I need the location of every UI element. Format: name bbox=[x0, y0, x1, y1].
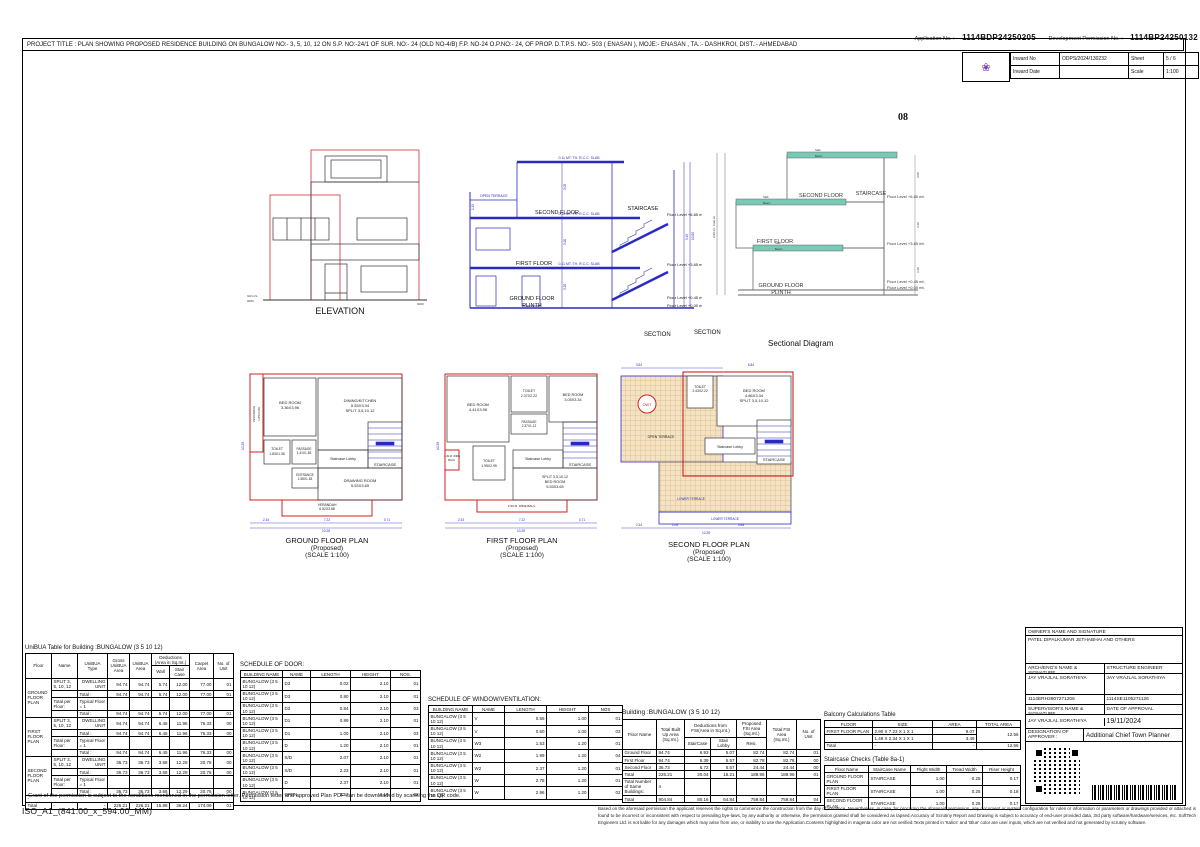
room-size: 3.36X3.96 bbox=[281, 405, 300, 410]
grant-note: Grant of the permission is subject to th… bbox=[28, 793, 508, 799]
table-cell: LENGTH bbox=[311, 671, 351, 678]
plan-scale: (SCALE 1:100) bbox=[611, 556, 807, 563]
table-cell: 00 bbox=[214, 756, 234, 768]
staircase-label: STAIRCASE bbox=[628, 206, 659, 212]
table-cell: 01 bbox=[589, 713, 623, 725]
code-area bbox=[1026, 742, 1182, 804]
plan-title: GROUND FLOOR PLAN bbox=[236, 536, 418, 545]
table-cell: 82.78 bbox=[767, 757, 797, 764]
second-floor-plan-drawing: OWT TOILET 1.43X2.22 BED ROOM 4.86X3.34 … bbox=[611, 360, 807, 536]
table-cell: 759.84 bbox=[767, 796, 797, 803]
sheet-label: Sheet bbox=[1129, 53, 1164, 66]
ground-floor-label: GROUND FLOOR bbox=[510, 296, 555, 302]
table-row: BUNGALOW (3 5 10 12)W2.781.2001 bbox=[429, 774, 623, 786]
second-floor-label: SECOND FLOOR bbox=[535, 210, 579, 216]
table-cell: 5.57 bbox=[711, 757, 737, 764]
terrace-label: OPEN TERRACE bbox=[648, 435, 675, 439]
table-cell: 94.74 bbox=[130, 691, 152, 698]
table-row: BUNGALOW (3 5 10 12)V0.561.0001 bbox=[429, 713, 623, 725]
table-row: Total per Floor: Typical Floor = 1 bbox=[26, 737, 234, 749]
slab-note: 0.11 MT. TH. R.C.C. SLAB bbox=[558, 156, 600, 160]
table-cell: 1.53 bbox=[505, 737, 547, 749]
table-cell: D bbox=[283, 776, 311, 788]
table-cell: 11.96 bbox=[170, 717, 190, 729]
table-cell: NAME bbox=[283, 671, 311, 678]
table-cell: W3 bbox=[473, 737, 505, 749]
table-cell: HEIGHT bbox=[351, 671, 391, 678]
supervisor-name: JAY VRAJLAL SORATHIYA bbox=[1026, 718, 1105, 726]
table-cell: SIZE bbox=[873, 721, 933, 728]
structure-engineer-name: JAY VRAJLAL SORATHIYA bbox=[1105, 674, 1183, 694]
table-cell: 1.20 bbox=[547, 737, 589, 749]
table-cell: Floor bbox=[26, 654, 52, 679]
table-cell: Name bbox=[52, 654, 78, 679]
table-cell: 12.29 bbox=[170, 756, 190, 768]
table-cell: 01 bbox=[589, 774, 623, 786]
table-cell: 1.20 bbox=[547, 750, 589, 762]
table-cell: Resi. bbox=[737, 737, 767, 749]
table-cell: 2.10 bbox=[351, 776, 391, 788]
section-floor-labels: SECOND FLOOR STAIRCASE FIRST FLOOR GROUN… bbox=[510, 206, 702, 309]
ground-level-label: GR.LVL. bbox=[247, 294, 258, 298]
table-cell: Typical Floor = 1 bbox=[78, 698, 108, 710]
table-cell: 2.10 bbox=[351, 727, 391, 739]
structure-engineer-registration: 1114SE1105271126 bbox=[1105, 695, 1183, 704]
table-cell: 76.33 bbox=[190, 749, 214, 756]
table-cell: 94.74 bbox=[108, 749, 130, 756]
plan-subtitle: (Proposed) bbox=[611, 549, 807, 556]
approval-date-value: 19/11/2024 bbox=[1105, 717, 1183, 727]
sectional-section-caption: SECTION bbox=[694, 330, 721, 336]
ground-level-mark: 0000 bbox=[247, 299, 254, 303]
dim-label: 3.00 bbox=[916, 172, 920, 178]
room-size: 4.41X3.96 bbox=[469, 407, 488, 412]
table-cell: DWELLING UNIT bbox=[78, 756, 108, 768]
table-cell: 36.73 bbox=[130, 769, 152, 776]
table-cell bbox=[52, 749, 78, 756]
table-cell: W2 bbox=[473, 750, 505, 762]
table-cell: 2.37 bbox=[311, 776, 351, 788]
table-row: BUNGALOW (3 5 10 12)W22.371.2001 bbox=[429, 762, 623, 774]
table-cell: 94.74 bbox=[108, 717, 130, 729]
room-label: TOILET bbox=[523, 389, 536, 393]
table-cell: 174.09 bbox=[190, 802, 214, 809]
table-row: Ground Floor94.746.935.0782.7482.7401 bbox=[623, 749, 821, 756]
table-cell: 2.10 bbox=[351, 752, 391, 764]
table-row: BUNGALOW (3 5 10 12)S/D2.072.1001 bbox=[241, 752, 421, 764]
table-cell: 00 bbox=[214, 769, 234, 776]
qr-code bbox=[1034, 748, 1080, 794]
table-cell: 94.74 bbox=[130, 749, 152, 756]
table-cell: 5.74 bbox=[152, 691, 170, 698]
table-cell: Total bbox=[825, 742, 873, 749]
table-cell: 759.84 bbox=[737, 796, 767, 803]
table-cell: 82.78 bbox=[737, 757, 767, 764]
room-split: SPLIT 3,5,10,12 bbox=[740, 398, 770, 403]
inward-no-value: ODPS/2024/130232 bbox=[1060, 53, 1129, 66]
plinth-label: PLINTH bbox=[771, 290, 791, 296]
table-cell: 36.73 bbox=[108, 769, 130, 776]
table-cell: 3.49 bbox=[933, 735, 977, 742]
supervisor-label: SUPERVISOR'S NAME & SIGNATURE bbox=[1026, 705, 1105, 714]
sectional-labels: Slab Beam Slab Beam Slab Beam SECOND FLO… bbox=[712, 148, 925, 296]
table-cell: BUNGALOW (3 5 10 12) bbox=[429, 737, 473, 749]
table-cell: 01 bbox=[214, 678, 234, 690]
table-cell: 2.37 bbox=[505, 762, 547, 774]
table-cell: SPLIT 3, 5, 10, 12 bbox=[52, 756, 78, 768]
flower-logo-icon: ❀ bbox=[981, 61, 990, 74]
room-labels: BED ROOM 4.41X3.96 TOILET 2.37X2.22 BED … bbox=[444, 389, 592, 508]
slab-note: 0.11 MT. TH. R.C.C. SLAB bbox=[558, 262, 600, 266]
table-cell: 5.74 bbox=[152, 710, 170, 717]
table-cell: 94.74 bbox=[130, 710, 152, 717]
inward-date-value bbox=[1060, 66, 1129, 79]
dim-label: 10.28 bbox=[702, 531, 710, 535]
dim-label: 1.15 bbox=[471, 204, 475, 210]
table-cell: 1.00 bbox=[547, 713, 589, 725]
table-cell bbox=[52, 691, 78, 698]
staircase-label: STAIRCASE bbox=[856, 191, 887, 197]
table-cell: BUNGALOW (3 5 10 12) bbox=[241, 752, 283, 764]
table-cell: 16.21 bbox=[711, 771, 737, 778]
dim-label: 9.45 bbox=[685, 234, 689, 240]
table-cell: W2 bbox=[473, 762, 505, 774]
table-cell: 6.45 bbox=[152, 717, 170, 729]
table-cell: LENGTH bbox=[505, 706, 547, 713]
balcony-table: FLOORSIZEAREATOTAL AREAFIRST FLOOR PLAN2… bbox=[824, 720, 1021, 750]
table-cell: V bbox=[473, 725, 505, 737]
room-size: 1.95X2.95 bbox=[481, 464, 497, 468]
building-fsi-table: Floor NameTotal Built Up Area (Sq.mt.)De… bbox=[622, 719, 821, 803]
table-cell: GROUND FLOOR PLAN bbox=[825, 773, 869, 785]
dim-label: 2.34 bbox=[636, 523, 642, 527]
table-cell bbox=[190, 698, 214, 710]
table-cell: 11.96 bbox=[170, 730, 190, 737]
level-label: Floor Level +0.00 mt. bbox=[887, 285, 925, 290]
level-label: Floor Level +6.85 mt. bbox=[667, 212, 702, 217]
table-cell bbox=[190, 737, 214, 749]
level-label: Floor Level +0.45 mt. bbox=[667, 295, 702, 300]
room-size: 1.58X1.83 bbox=[298, 477, 313, 481]
first-floor-plan-drawing: BED ROOM 4.41X3.96 TOILET 2.37X2.22 BED … bbox=[431, 366, 613, 534]
table-cell: 94.74 bbox=[108, 730, 130, 737]
table-row: Inward Date Scale 1:100 bbox=[1011, 66, 1199, 79]
table-row: First Floor94.746.395.5782.7882.7800 bbox=[623, 757, 821, 764]
first-floor-label: FIRST FLOOR bbox=[757, 239, 793, 245]
owner-name: PATEL DIPALKUMAR JETHABHAI AND OTHERS bbox=[1026, 636, 1182, 664]
dim-label: 3.20 bbox=[563, 284, 567, 290]
table-row: FloorNameUniBUA TypeGross UniBUA AreaUni… bbox=[26, 654, 234, 666]
table-cell: 64.84 bbox=[711, 796, 737, 803]
table-cell: BUNGALOW (3 5 10 12) bbox=[429, 713, 473, 725]
table-row: Floor NameTotal Built Up Area (Sq.mt.)De… bbox=[623, 720, 821, 738]
table-cell: Stair Lobby bbox=[711, 737, 737, 749]
room-label: STAIRCASE bbox=[763, 457, 786, 462]
ground-floor-plan-drawing: BED ROOM 3.36X3.96 DINING/KITCHEN 5.53X3… bbox=[236, 366, 418, 534]
table-cell: Total : bbox=[78, 769, 108, 776]
table-cell bbox=[214, 776, 234, 788]
door-schedule-table: BUILDING NAMENAMELENGTHHEIGHTNOS.BUNGALO… bbox=[240, 670, 421, 802]
table-cell: 0.80 bbox=[311, 690, 351, 702]
table-cell: 01 bbox=[391, 776, 421, 788]
dim-label: 2.34 bbox=[263, 518, 269, 522]
table-row: Total :94.7494.745.7412.0077.0001 bbox=[26, 710, 234, 717]
level-label: Floor Level +3.65 mt. bbox=[667, 262, 702, 267]
table-cell: NOS bbox=[589, 706, 623, 713]
first-floor-label: FIRST FLOOR bbox=[516, 261, 552, 267]
table-cell: 94.74 bbox=[657, 757, 685, 764]
table-cell: 04 bbox=[589, 750, 623, 762]
dim-label: 7.22 bbox=[519, 518, 525, 522]
table-cell: BUNGALOW (3 5 10 12) bbox=[429, 774, 473, 786]
table-cell bbox=[52, 710, 78, 717]
table-cell: 2.78 bbox=[505, 774, 547, 786]
table-cell: 5.74 bbox=[152, 678, 170, 690]
table-cell bbox=[825, 735, 873, 742]
room-size: 1.41X1.83 bbox=[297, 451, 312, 455]
table-cell: BUILDING NAME bbox=[429, 706, 473, 713]
first-plan-caption: FIRST FLOOR PLAN (Proposed) (SCALE 1:100… bbox=[431, 536, 613, 559]
table-cell: 2.90 X 7.23 X 1 X 1 bbox=[873, 728, 933, 735]
table-cell: 2.10 bbox=[351, 764, 391, 776]
table-cell: 1.49 X 2.34 X 1 X 1 bbox=[873, 735, 933, 742]
dim-label: 2.06 bbox=[672, 523, 678, 527]
plan-title: SECOND FLOOR PLAN bbox=[611, 540, 807, 549]
table-row: GROUND FLOOR PLANSPLIT 3, 5, 10, 12DWELL… bbox=[26, 678, 234, 690]
terrace-label: LOWER TERRACE bbox=[711, 517, 739, 521]
ground-level-mark: 0000 bbox=[417, 302, 424, 306]
room-label: STAIRCASE bbox=[569, 462, 592, 467]
room-label: TOILET bbox=[483, 459, 495, 463]
table-cell: Total : bbox=[78, 691, 108, 698]
table-cell: 20.04 bbox=[685, 771, 711, 778]
table-cell: Floor Name bbox=[623, 720, 657, 750]
room-label: BED ROOM bbox=[545, 480, 566, 484]
table-cell: 11.96 bbox=[170, 749, 190, 756]
sectional-diagram-drawing: Slab Beam Slab Beam Slab Beam SECOND FLO… bbox=[703, 138, 948, 326]
table-cell: 24.44 bbox=[737, 764, 767, 771]
table-cell: 1.20 bbox=[547, 762, 589, 774]
table-cell: Gross UniBUA Area bbox=[108, 654, 130, 679]
table-cell: Typical Floor = 1 bbox=[78, 776, 108, 788]
table-cell: 1.00 bbox=[911, 773, 947, 785]
table-cell: Total bbox=[623, 796, 657, 803]
table-row: FIRST FLOOR PLAN2.90 X 7.23 X 1 X 19.071… bbox=[825, 728, 1021, 735]
room-size: 1.05X3.80 bbox=[257, 407, 261, 421]
room-size: 1.83X1.38 bbox=[269, 452, 285, 456]
table-cell bbox=[130, 737, 152, 749]
table-cell: BUNGALOW (3 5 10 12) bbox=[429, 725, 473, 737]
scale-label: Scale bbox=[1129, 66, 1164, 79]
table-row: Total :94.7494.746.4511.9676.3300 bbox=[26, 749, 234, 756]
arch-eng-name: JAY VRAJLAL SORATHIYA bbox=[1026, 674, 1105, 694]
table-cell: No. of Unit bbox=[214, 654, 234, 679]
table-cell: 01 bbox=[391, 690, 421, 702]
table-row: FIRST FLOOR PLANSPLIT 3, 5, 10, 12DWELLI… bbox=[26, 717, 234, 729]
table-row: Total226.2120.0416.21189.96189.9601 bbox=[623, 771, 821, 778]
table-cell: 2.10 bbox=[351, 690, 391, 702]
table-cell: 3.68 bbox=[152, 756, 170, 768]
table-cell: 36.24 bbox=[170, 802, 190, 809]
terrace-label: LOWER TERRACE bbox=[677, 497, 705, 501]
table-cell: 1.00 bbox=[911, 785, 947, 797]
table-cell: 03 bbox=[589, 725, 623, 737]
table-cell: First Floor bbox=[623, 757, 657, 764]
table-cell: 5.07 bbox=[711, 749, 737, 756]
table-cell: 01 bbox=[391, 739, 421, 751]
sheet-page-number: 08 bbox=[898, 112, 908, 123]
project-title: PROJECT TITLE : PLAN SHOWING PROPOSED RE… bbox=[22, 38, 1184, 51]
table-cell: TOTAL AREA bbox=[977, 721, 1021, 728]
table-cell: BUNGALOW (3 5 10 12) bbox=[429, 750, 473, 762]
table-cell: 0.84 bbox=[311, 702, 351, 714]
table-cell: Deductions (Area in Sq.mt.) bbox=[152, 654, 190, 666]
table-cell bbox=[767, 778, 797, 796]
dim-label: 10.28 bbox=[322, 529, 330, 533]
table-cell: BUILDING NAME bbox=[241, 671, 283, 678]
table-cell: 2.96 bbox=[505, 787, 547, 799]
table-cell: 77.00 bbox=[190, 678, 214, 690]
table-cell: 20.76 bbox=[190, 756, 214, 768]
table-cell: AREA bbox=[933, 721, 977, 728]
dim-label: 3.20 bbox=[563, 239, 567, 245]
level-label: Floor Level +0.45 mt. bbox=[887, 279, 925, 284]
table-cell: 0.60 bbox=[505, 725, 547, 737]
slab-bars bbox=[736, 152, 897, 251]
table-cell: D3 bbox=[283, 678, 311, 690]
arch-eng-label: ARCH/ENG'S NAME & SIGNATURE bbox=[1026, 664, 1105, 673]
table-cell: D1 bbox=[283, 715, 311, 727]
table-cell: 6.72 bbox=[685, 764, 711, 771]
table-cell bbox=[130, 698, 152, 710]
ground-floor-label: GROUND FLOOR bbox=[759, 283, 804, 289]
ground-plan-caption: GROUND FLOOR PLAN (Proposed) (SCALE 1:10… bbox=[236, 536, 418, 559]
table-cell: HEIGHT bbox=[547, 706, 589, 713]
table-cell bbox=[170, 776, 190, 788]
table-cell: 2.10 bbox=[351, 678, 391, 690]
room-split: SPLIT 3,5,10,12 bbox=[346, 408, 376, 413]
table-cell: 94.74 bbox=[108, 691, 130, 698]
beam-label: Beam bbox=[775, 247, 783, 251]
elevation-red-outline bbox=[270, 150, 419, 300]
table-cell: 0.56 bbox=[505, 713, 547, 725]
table-cell: BUNGALOW (3 5 10 12) bbox=[429, 762, 473, 774]
approval-date-label: DATE OF APPROVAL bbox=[1105, 705, 1183, 714]
balcony-table-title: Balcony Calculations Table bbox=[824, 712, 896, 718]
dim-label: 5.88 bbox=[738, 523, 744, 527]
room-label: TOILET bbox=[271, 447, 283, 451]
room-label: Staircase Lobby bbox=[717, 445, 743, 449]
table-row: BUNGALOW (3 5 10 12)D1.202.1001 bbox=[241, 739, 421, 751]
table-cell: - bbox=[873, 742, 933, 749]
table-cell: BUNGALOW (3 5 10 12) bbox=[241, 678, 283, 690]
table-cell: S/D bbox=[283, 764, 311, 776]
table-cell: 2.10 bbox=[351, 715, 391, 727]
table-cell: W bbox=[473, 774, 505, 786]
arch-eng-registration: 1114ERH2807271206 bbox=[1026, 695, 1105, 704]
table-cell: 01 bbox=[589, 762, 623, 774]
table-cell: No. of Unit bbox=[797, 720, 821, 750]
table-cell: 0.18 bbox=[983, 785, 1021, 797]
room-label: Staircase Lobby bbox=[330, 457, 356, 461]
table-row: FLOORSIZEAREATOTAL AREA bbox=[825, 721, 1021, 728]
room-size: 2.37X2.22 bbox=[521, 394, 537, 398]
room-size: 2.37X1.12 bbox=[522, 424, 537, 428]
table-cell bbox=[797, 778, 821, 796]
balcony-label: 2.90 M. WIDE BALC. bbox=[508, 504, 536, 508]
structure-engineer-label: STRUCTURE ENGINEER bbox=[1105, 664, 1183, 673]
table-cell: 1.00 bbox=[547, 725, 589, 737]
table-cell: 82.74 bbox=[737, 749, 767, 756]
table-row: Total per Floor: Typical Floor = 1 bbox=[26, 776, 234, 788]
table-cell: 94.74 bbox=[108, 678, 130, 690]
table-cell: 03 bbox=[391, 702, 421, 714]
table-cell: STAIRCASE bbox=[869, 785, 911, 797]
table-cell bbox=[130, 776, 152, 788]
table-row: BUILDING NAMENAMELENGTHHEIGHTNOS. bbox=[241, 671, 421, 678]
plan-dimensions: 2.34 7.22 0.71 10.28 10.28 bbox=[241, 442, 402, 533]
building-table-title: Building :BUNGALOW (3 5 10 12) bbox=[622, 709, 720, 716]
drawing-sheet: Application No. : 1114BDP24250205 Develo… bbox=[0, 0, 1200, 847]
table-cell: 2.07 bbox=[311, 752, 351, 764]
table-cell: NOS. bbox=[391, 671, 421, 678]
table-cell bbox=[737, 778, 767, 796]
table-cell: 4 bbox=[657, 778, 685, 796]
table-cell: Total : bbox=[78, 730, 108, 737]
unibua-table: FloorNameUniBUA TypeGross UniBUA AreaUni… bbox=[25, 653, 234, 810]
table-cell: 3.68 bbox=[152, 769, 170, 776]
table-cell: Second Floor bbox=[623, 764, 657, 771]
table-cell: 01 bbox=[797, 749, 821, 756]
table-cell: 76.33 bbox=[190, 730, 214, 737]
table-cell: FIRST FLOOR PLAN bbox=[825, 728, 873, 735]
room-size: 5.53X3.65 bbox=[351, 483, 370, 488]
table-cell: 02 bbox=[589, 787, 623, 799]
table-cell: SPLIT 3, 5, 10, 12 bbox=[52, 717, 78, 729]
table-cell: 80.16 bbox=[685, 796, 711, 803]
table-cell bbox=[108, 698, 130, 710]
table-row: SECOND FLOOR PLANSPLIT 3, 5, 10, 12DWELL… bbox=[26, 756, 234, 768]
table-row: GROUND FLOOR PLANSTAIRCASE1.000.250.17 bbox=[825, 773, 1021, 785]
table-cell: 6.45 bbox=[152, 749, 170, 756]
table-cell: 6.39 bbox=[685, 757, 711, 764]
plan-scale: (SCALE 1:100) bbox=[236, 552, 418, 559]
table-cell: 94.74 bbox=[657, 749, 685, 756]
balcony-label: BALC. bbox=[448, 458, 456, 462]
window-table-title: SCHEDULE OF WINDOW/VENTILATION: bbox=[428, 697, 541, 703]
dim-label: 10.28 bbox=[436, 442, 440, 450]
table-cell: FIRST FLOOR PLAN bbox=[26, 717, 52, 756]
table-cell: 0.25 bbox=[947, 785, 983, 797]
second-plan-caption: SECOND FLOOR PLAN (Proposed) (SCALE 1:10… bbox=[611, 540, 807, 563]
table-cell: DWELLING UNIT bbox=[78, 678, 108, 690]
table-cell: Flight Width bbox=[911, 766, 947, 773]
table-cell: Stair Case bbox=[170, 666, 190, 678]
table-cell: 12.00 bbox=[170, 710, 190, 717]
table-row: Total per Floor: Typical Floor = 1 bbox=[26, 698, 234, 710]
table-cell: 00 bbox=[214, 717, 234, 729]
table-cell: 15.88 bbox=[152, 802, 170, 809]
table-cell: 0.02 bbox=[311, 678, 351, 690]
table-cell bbox=[52, 769, 78, 776]
room-size: 5.53X3.65 bbox=[546, 485, 563, 489]
table-cell: Total : bbox=[78, 710, 108, 717]
dim-label: 3.20 bbox=[916, 267, 920, 273]
table-cell: Total Number of Same Buildings: bbox=[623, 778, 657, 796]
table-cell bbox=[214, 698, 234, 710]
balcony-label: 1.49 M. WIDE bbox=[444, 454, 460, 458]
table-row: BUNGALOW (3 5 10 12)W21.991.2004 bbox=[429, 750, 623, 762]
